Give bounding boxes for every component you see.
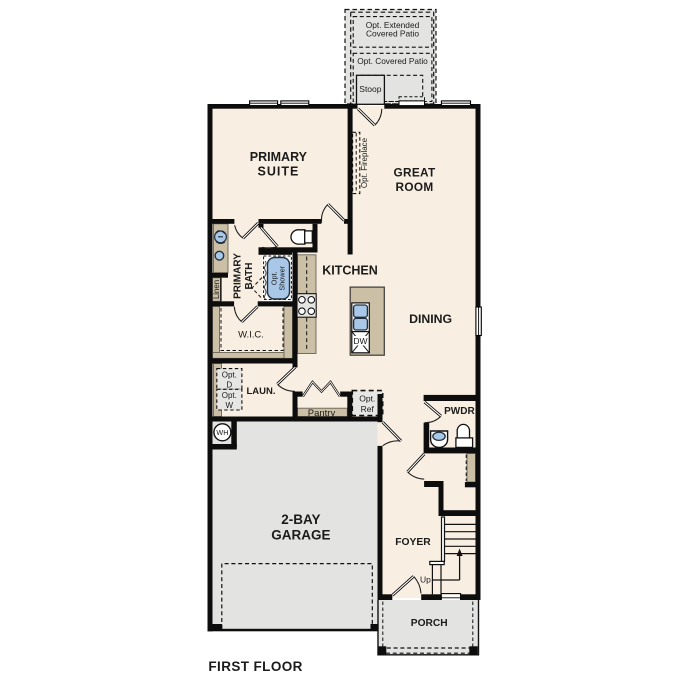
svg-text:FOYER: FOYER — [395, 537, 431, 548]
svg-text:Shower: Shower — [277, 265, 286, 290]
svg-text:Up: Up — [420, 575, 431, 585]
svg-text:Opt.: Opt. — [222, 391, 237, 400]
svg-text:FIRST FLOOR: FIRST FLOOR — [208, 659, 302, 674]
svg-text:ROOM: ROOM — [396, 180, 434, 194]
svg-text:PRIMARY: PRIMARY — [233, 253, 244, 299]
svg-text:D: D — [226, 380, 232, 389]
svg-text:W.I.C.: W.I.C. — [238, 330, 264, 341]
svg-text:PRIMARY: PRIMARY — [250, 150, 308, 164]
svg-text:KITCHEN: KITCHEN — [322, 264, 378, 278]
svg-text:LAUN.: LAUN. — [246, 386, 275, 397]
svg-text:Stoop: Stoop — [359, 84, 381, 94]
svg-text:Opt. Fireplace: Opt. Fireplace — [360, 137, 369, 188]
svg-text:DINING: DINING — [409, 312, 452, 326]
svg-text:W: W — [226, 401, 234, 410]
svg-text:Opt.: Opt. — [359, 394, 375, 404]
svg-text:Opt. Covered Patio: Opt. Covered Patio — [357, 56, 428, 66]
svg-text:BATH: BATH — [244, 262, 255, 289]
svg-text:Ref: Ref — [361, 404, 375, 414]
svg-text:GREAT: GREAT — [394, 166, 436, 180]
svg-text:Opt.: Opt. — [222, 371, 237, 380]
svg-text:PWDR: PWDR — [444, 406, 475, 417]
svg-text:Covered Patio: Covered Patio — [366, 29, 419, 39]
svg-text:DW: DW — [353, 336, 367, 346]
svg-text:Linen: Linen — [212, 280, 221, 299]
svg-text:SUITE: SUITE — [257, 164, 299, 178]
svg-text:GARAGE: GARAGE — [271, 528, 330, 543]
svg-text:PORCH: PORCH — [411, 618, 448, 629]
svg-text:WH: WH — [216, 428, 228, 437]
svg-text:2-BAY: 2-BAY — [281, 512, 320, 527]
